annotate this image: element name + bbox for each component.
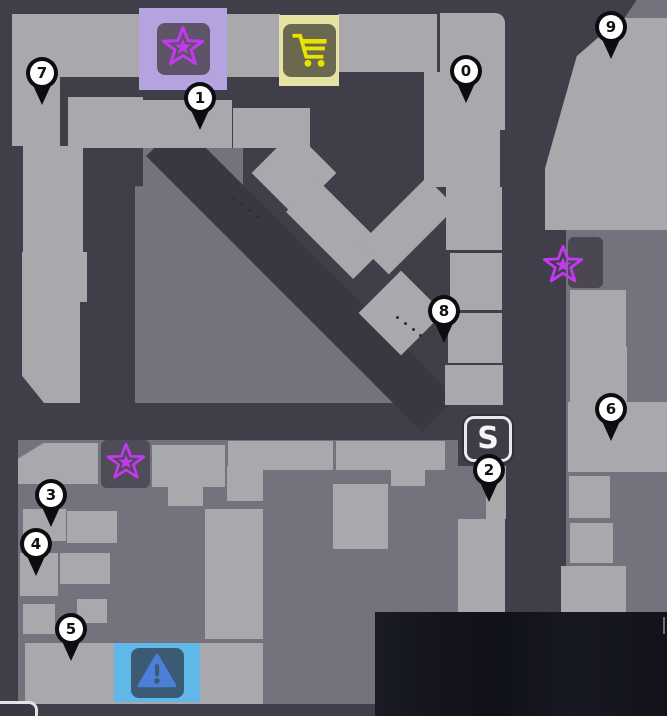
map-pin-6[interactable]: 6 xyxy=(594,393,628,443)
building-block-diagonal xyxy=(359,178,456,275)
building-block xyxy=(424,130,500,187)
warning-shop-marker[interactable] xyxy=(114,643,200,702)
corner-badge-partial[interactable] xyxy=(0,701,38,716)
map-pin-5[interactable]: 5 xyxy=(54,613,88,663)
shopping-cart-icon xyxy=(287,27,331,75)
building-block xyxy=(458,519,505,613)
star-pickup-southwest[interactable] xyxy=(101,440,150,488)
cart-shop-marker[interactable] xyxy=(279,15,339,86)
warning-triangle-icon xyxy=(136,650,178,696)
building-block xyxy=(23,146,83,252)
map-pin-2[interactable]: 2 xyxy=(472,454,506,504)
station-badge-label: S xyxy=(477,424,499,454)
pin-number: 4 xyxy=(24,532,48,556)
building-block xyxy=(233,108,310,148)
building-block xyxy=(22,302,80,403)
building-block xyxy=(338,14,437,72)
overlay-highlight-line xyxy=(663,617,665,634)
building-block xyxy=(391,466,425,486)
building-block xyxy=(561,566,626,613)
building-block xyxy=(68,97,143,148)
building-block xyxy=(168,474,203,506)
pin-number: 5 xyxy=(59,617,83,641)
pin-number: 0 xyxy=(454,59,478,83)
pin-number: 3 xyxy=(39,483,63,507)
map-pin-9[interactable]: 9 xyxy=(594,11,628,61)
game-map: S 7109862345 xyxy=(0,0,667,716)
building-block xyxy=(446,187,502,250)
building-block xyxy=(205,509,263,639)
building-block xyxy=(333,484,388,549)
building-block xyxy=(445,365,503,405)
building-block xyxy=(570,523,613,563)
map-pin-8[interactable]: 8 xyxy=(427,295,461,345)
map-pin-4[interactable]: 4 xyxy=(19,528,53,578)
building-block xyxy=(60,553,110,584)
map-pin-1[interactable]: 1 xyxy=(183,82,217,132)
building-block xyxy=(23,604,55,634)
map-pin-7[interactable]: 7 xyxy=(25,57,59,107)
pin-number: 9 xyxy=(599,15,623,39)
building-block xyxy=(570,290,626,347)
star-shop-marker[interactable] xyxy=(139,8,227,90)
building-block xyxy=(227,466,263,501)
building-block xyxy=(569,476,610,518)
pin-number: 6 xyxy=(599,397,623,421)
pin-number: 7 xyxy=(30,61,54,85)
dark-photo-overlay xyxy=(375,612,667,716)
map-pin-3[interactable]: 3 xyxy=(34,479,68,529)
star-icon xyxy=(541,243,585,291)
building-block xyxy=(67,511,117,543)
building-block xyxy=(227,14,280,77)
pin-number: 1 xyxy=(188,86,212,110)
pin-number: 8 xyxy=(432,299,456,323)
building-block xyxy=(22,252,87,302)
star-pickup-northeast[interactable] xyxy=(541,245,585,289)
map-pin-0[interactable]: 0 xyxy=(449,55,483,105)
star-icon xyxy=(105,441,147,487)
star-icon xyxy=(160,24,206,74)
pin-number: 2 xyxy=(477,458,501,482)
